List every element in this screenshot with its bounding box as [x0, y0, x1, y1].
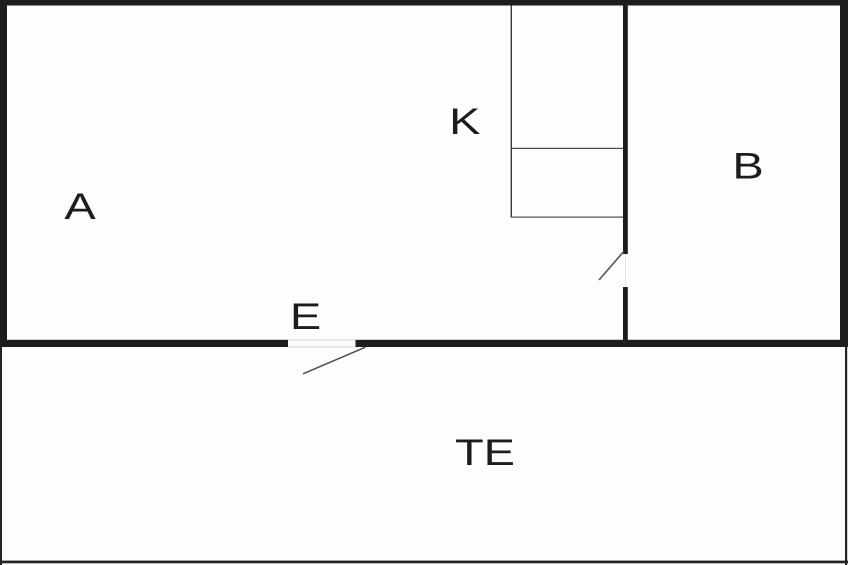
- svg-text:B: B: [732, 145, 763, 186]
- svg-text:TE: TE: [455, 432, 515, 473]
- svg-text:E: E: [290, 296, 321, 337]
- svg-text:K: K: [449, 101, 480, 142]
- svg-text:A: A: [64, 186, 96, 227]
